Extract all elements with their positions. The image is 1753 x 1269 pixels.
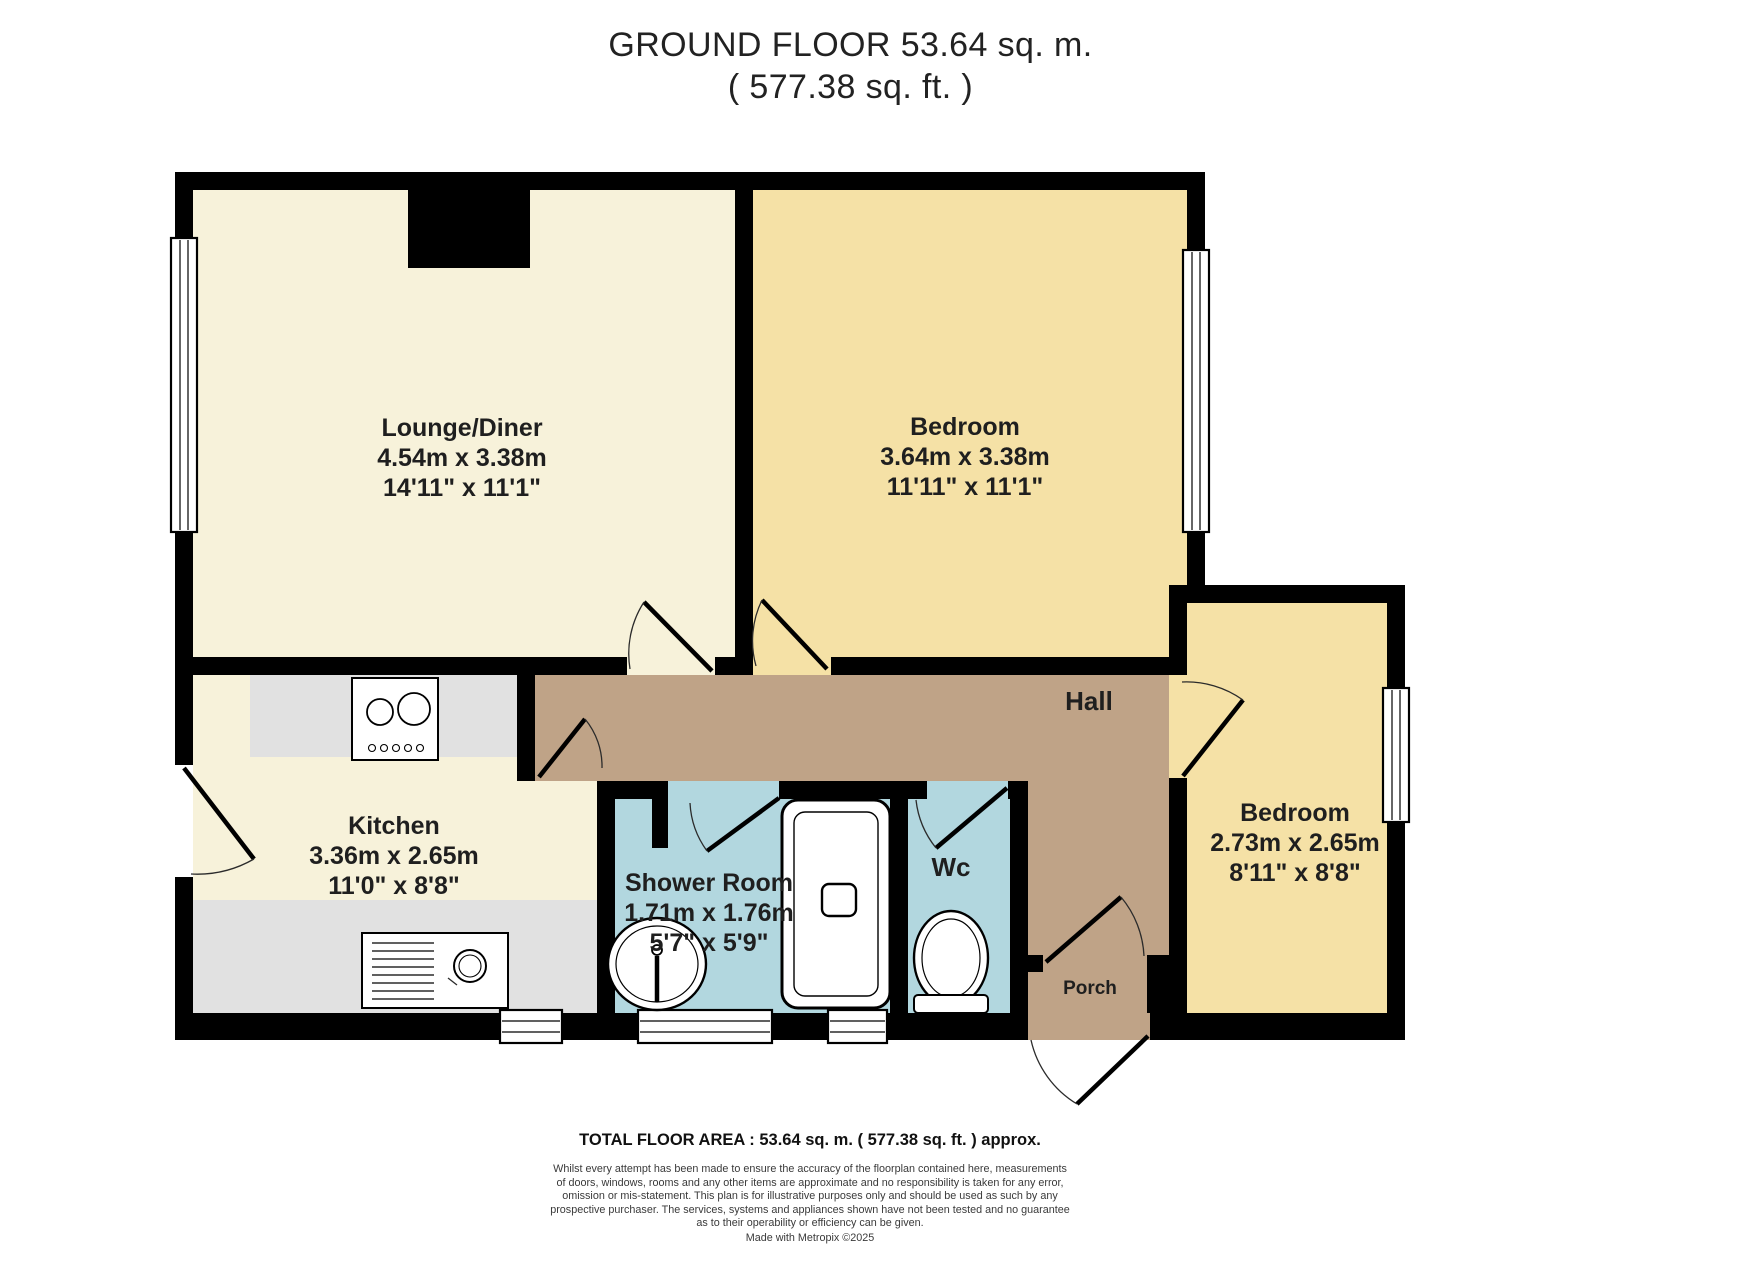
room-dims-imperial: 14'11" x 11'1" bbox=[377, 473, 547, 503]
window-wc bbox=[828, 1010, 887, 1043]
room-dims-imperial: 5'7" x 5'9" bbox=[624, 928, 794, 958]
sink-icon bbox=[362, 933, 508, 1008]
bath-icon bbox=[782, 800, 890, 1008]
window-bedroom2 bbox=[1383, 688, 1409, 822]
room-dims-imperial: 8'11" x 8'8" bbox=[1210, 858, 1380, 888]
room-dims-imperial: 11'0" x 8'8" bbox=[309, 871, 479, 901]
room-dims-metric: 1.71m x 1.76m bbox=[624, 898, 794, 928]
room-label-bedroom1: Bedroom 3.64m x 3.38m 11'11" x 11'1" bbox=[880, 412, 1050, 502]
window-shower bbox=[638, 1010, 772, 1043]
plan-title-line1: GROUND FLOOR 53.64 sq. m. bbox=[0, 24, 1701, 66]
floorplan-drawing bbox=[0, 0, 1753, 1269]
door-front bbox=[1031, 1036, 1148, 1104]
disclaimer-line: as to their operability or efficiency ca… bbox=[410, 1217, 1210, 1231]
window-lounge bbox=[171, 238, 197, 532]
total-floor-area: TOTAL FLOOR AREA : 53.64 sq. m. ( 577.38… bbox=[410, 1131, 1210, 1150]
plan-title-line2: ( 577.38 sq. ft. ) bbox=[0, 66, 1701, 108]
room-label-bedroom2: Bedroom 2.73m x 2.65m 8'11" x 8'8" bbox=[1210, 798, 1380, 888]
room-name: Bedroom bbox=[880, 412, 1050, 442]
room-name: Kitchen bbox=[309, 811, 479, 841]
hob-icon bbox=[352, 678, 438, 760]
room-label-wc: Wc bbox=[932, 853, 971, 881]
disclaimer-line: Whilst every attempt has been made to en… bbox=[410, 1163, 1210, 1177]
floorplan-page: GROUND FLOOR 53.64 sq. m. ( 577.38 sq. f… bbox=[0, 0, 1753, 1269]
footer: TOTAL FLOOR AREA : 53.64 sq. m. ( 577.38… bbox=[410, 1131, 1210, 1246]
room-name: Bedroom bbox=[1210, 798, 1380, 828]
window-bedroom1 bbox=[1183, 250, 1209, 532]
room-name: Hall bbox=[1065, 687, 1113, 715]
room-label-kitchen: Kitchen 3.36m x 2.65m 11'0" x 8'8" bbox=[309, 811, 479, 901]
room-dims-imperial: 11'11" x 11'1" bbox=[880, 472, 1050, 502]
window-kitchen bbox=[500, 1010, 562, 1043]
bedroom2-doorway bbox=[1169, 673, 1187, 778]
room-name: Wc bbox=[932, 853, 971, 881]
plan-title: GROUND FLOOR 53.64 sq. m. ( 577.38 sq. f… bbox=[0, 24, 1753, 108]
disclaimer-line: of doors, windows, rooms and any other i… bbox=[410, 1177, 1210, 1191]
room-label-shower: Shower Room 1.71m x 1.76m 5'7" x 5'9" bbox=[624, 868, 794, 958]
room-label-hall: Hall bbox=[1065, 687, 1113, 715]
room-name: Porch bbox=[1063, 978, 1117, 1000]
disclaimer-line: prospective purchaser. The services, sys… bbox=[410, 1204, 1210, 1218]
room-name: Lounge/Diner bbox=[377, 413, 547, 443]
toilet-icon bbox=[914, 911, 988, 1013]
room-label-porch: Porch bbox=[1063, 978, 1117, 1000]
disclaimer: Whilst every attempt has been made to en… bbox=[410, 1163, 1210, 1231]
room-dims-metric: 2.73m x 2.65m bbox=[1210, 828, 1380, 858]
disclaimer-line: omission or mis-statement. This plan is … bbox=[410, 1190, 1210, 1204]
room-dims-metric: 3.64m x 3.38m bbox=[880, 442, 1050, 472]
room-dims-metric: 3.36m x 2.65m bbox=[309, 841, 479, 871]
room-dims-metric: 4.54m x 3.38m bbox=[377, 443, 547, 473]
metropix-credit: Made with Metropix ©2025 bbox=[410, 1232, 1210, 1246]
chimney-breast bbox=[408, 190, 530, 268]
porch-threshold bbox=[1028, 1013, 1150, 1040]
room-name: Shower Room bbox=[624, 868, 794, 898]
room-label-lounge: Lounge/Diner 4.54m x 3.38m 14'11" x 11'1… bbox=[377, 413, 547, 503]
